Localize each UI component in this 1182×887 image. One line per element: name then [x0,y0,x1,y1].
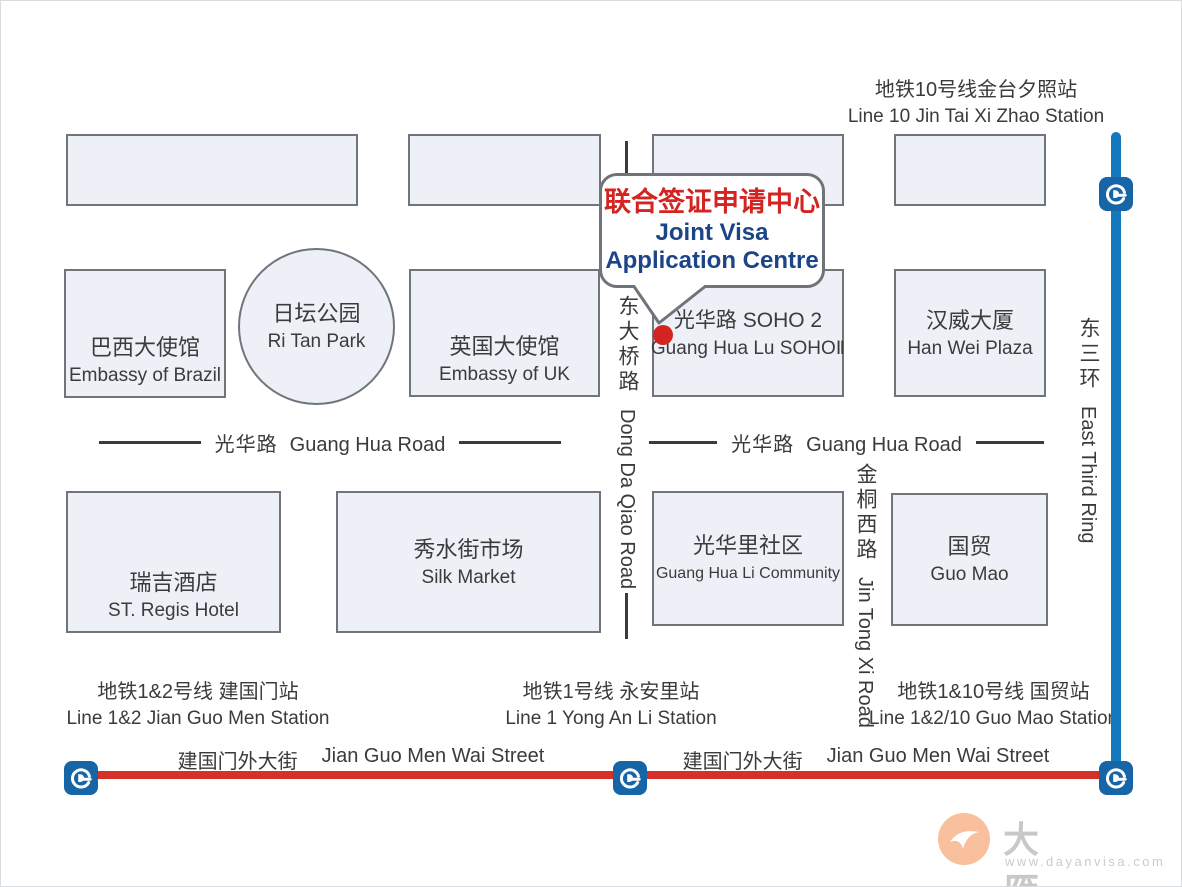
watermark-brand-text: 大雁签证 [1003,811,1041,887]
metro-logo-icon [618,766,642,790]
place-name-en: Han Wei Plaza [907,336,1032,362]
building-guanghuali-community: 光华里社区 Guang Hua Li Community [652,491,844,626]
road-label-zh: 东三环 [1077,317,1100,392]
place-name-en: ST. Regis Hotel [108,598,239,624]
jianguomenwai-street-label-left: 建国门外大街 Jian Guo Men Wai Street [166,745,556,774]
station-jintaixizhao: 地铁10号线金台夕照站 Line 10 Jin Tai Xi Zhao Stat… [831,77,1121,130]
road-line [99,441,201,444]
building-guomao: 国贸 Guo Mao [891,493,1048,626]
place-name-en: Guang Hua Lu SOHOⅡ [651,336,845,362]
east-third-ring-label: 东三环East Third Ring [1073,317,1103,543]
road-label-en: Guang Hua Road [806,434,962,456]
road-label-en: Guang Hua Road [290,434,446,456]
street-label-en: Jian Guo Men Wai Street [827,745,1050,774]
metro-line-10-east-third-ring [1111,132,1121,778]
place-name-zh: 英国大使馆 [449,331,559,362]
building-block-unlabeled-2 [408,134,601,206]
road-label-zh: 光华路 [731,434,794,456]
place-name-en: Silk Market [422,565,516,591]
place-name-zh: 光华里社区 [693,530,803,561]
building-silk-market: 秀水街市场 Silk Market [336,491,601,633]
callout-title-en-line2: Application Centre [605,247,818,275]
road-line [649,441,717,444]
guanghua-road-left: 光华路Guang Hua Road [99,429,561,455]
place-name-zh: 汉威大厦 [926,305,1014,336]
joint-visa-centre-callout: 联合签证申请中心 Joint Visa Application Centre [599,173,825,288]
road-label-zh: 金桐西路 [854,463,877,563]
callout-title-zh: 联合签证申请中心 [604,186,820,219]
station-name-en: Line 1 Yong An Li Station [451,706,771,732]
callout-title-en-line1: Joint Visa [656,219,769,247]
guanghua-road-right: 光华路Guang Hua Road [649,429,1044,455]
station-jianguomen: 地铁1&2号线 建国门站 Line 1&2 Jian Guo Men Stati… [38,679,358,732]
callout-tail [623,285,723,327]
station-name-zh: 地铁10号线金台夕照站 [831,77,1121,104]
place-name-en: Embassy of UK [439,362,570,388]
building-block-unlabeled-1 [66,134,358,206]
road-label-en: East Third Ring [1077,406,1099,543]
place-name-zh: 国贸 [947,531,991,562]
metro-logo-icon [1104,766,1128,790]
metro-logo-icon [69,766,93,790]
goose-logo-circle [938,813,990,865]
station-yonganli: 地铁1号线 永安里站 Line 1 Yong An Li Station [451,679,771,732]
road-label: 光华路Guang Hua Road [215,428,446,457]
building-st-regis-hotel: 瑞吉酒店 ST. Regis Hotel [66,491,281,633]
visa-centre-location-map: 巴西大使馆 Embassy of Brazil 日坛公园 Ri Tan Park… [0,0,1182,887]
station-name-zh: 地铁1号线 永安里站 [451,679,771,706]
place-name-en: Ri Tan Park [268,329,366,355]
place-name-zh: 日坛公园 [272,298,360,329]
dongdaqiao-road-line-top [625,141,628,174]
place-name-en: Guang Hua Li Community [656,561,840,587]
building-embassy-of-brazil: 巴西大使馆 Embassy of Brazil [64,269,226,398]
building-hanwei-plaza: 汉威大厦 Han Wei Plaza [894,269,1046,397]
place-name-zh: 巴西大使馆 [90,332,200,363]
street-label-zh: 建国门外大街 [683,745,803,774]
watermark-url-text: www.dayanvisa.com [1005,854,1165,869]
metro-station-marker-yonganli [613,761,647,795]
place-name-en: Embassy of Brazil [69,363,221,389]
metro-station-marker-jintaixizhao [1099,177,1133,211]
road-label-en: Dong Da Qiao Road [616,409,638,589]
jianguomenwai-street-line [81,771,1116,779]
dongdaqiao-road-line-bottom [625,593,628,639]
place-name-zh: 秀水街市场 [413,534,523,565]
metro-logo-icon [1104,182,1128,206]
building-block-unlabeled-4 [894,134,1046,206]
road-line [976,441,1044,444]
road-label-zh: 光华路 [215,434,278,456]
place-name-en: Guo Mao [930,562,1008,588]
dongdaqiao-road-label: 东大桥路Dong Da Qiao Road [612,295,642,589]
jianguomenwai-street-label-right: 建国门外大街 Jian Guo Men Wai Street [671,745,1061,774]
visa-centre-marker-dot [653,325,673,345]
metro-station-marker-guomao [1099,761,1133,795]
metro-station-marker-jianguomen [64,761,98,795]
place-name-zh: 瑞吉酒店 [129,567,217,598]
street-label-zh: 建国门外大街 [178,745,298,774]
building-embassy-of-uk: 英国大使馆 Embassy of UK [409,269,600,397]
station-name-en: Line 1&2 Jian Guo Men Station [38,706,358,732]
goose-icon [946,821,982,857]
road-label: 光华路Guang Hua Road [731,428,962,457]
station-name-zh: 地铁1&2号线 建国门站 [38,679,358,706]
ritan-park-circle: 日坛公园 Ri Tan Park [238,248,395,405]
station-name-en: Line 10 Jin Tai Xi Zhao Station [831,104,1121,130]
road-line [459,441,561,444]
street-label-en: Jian Guo Men Wai Street [322,745,545,774]
